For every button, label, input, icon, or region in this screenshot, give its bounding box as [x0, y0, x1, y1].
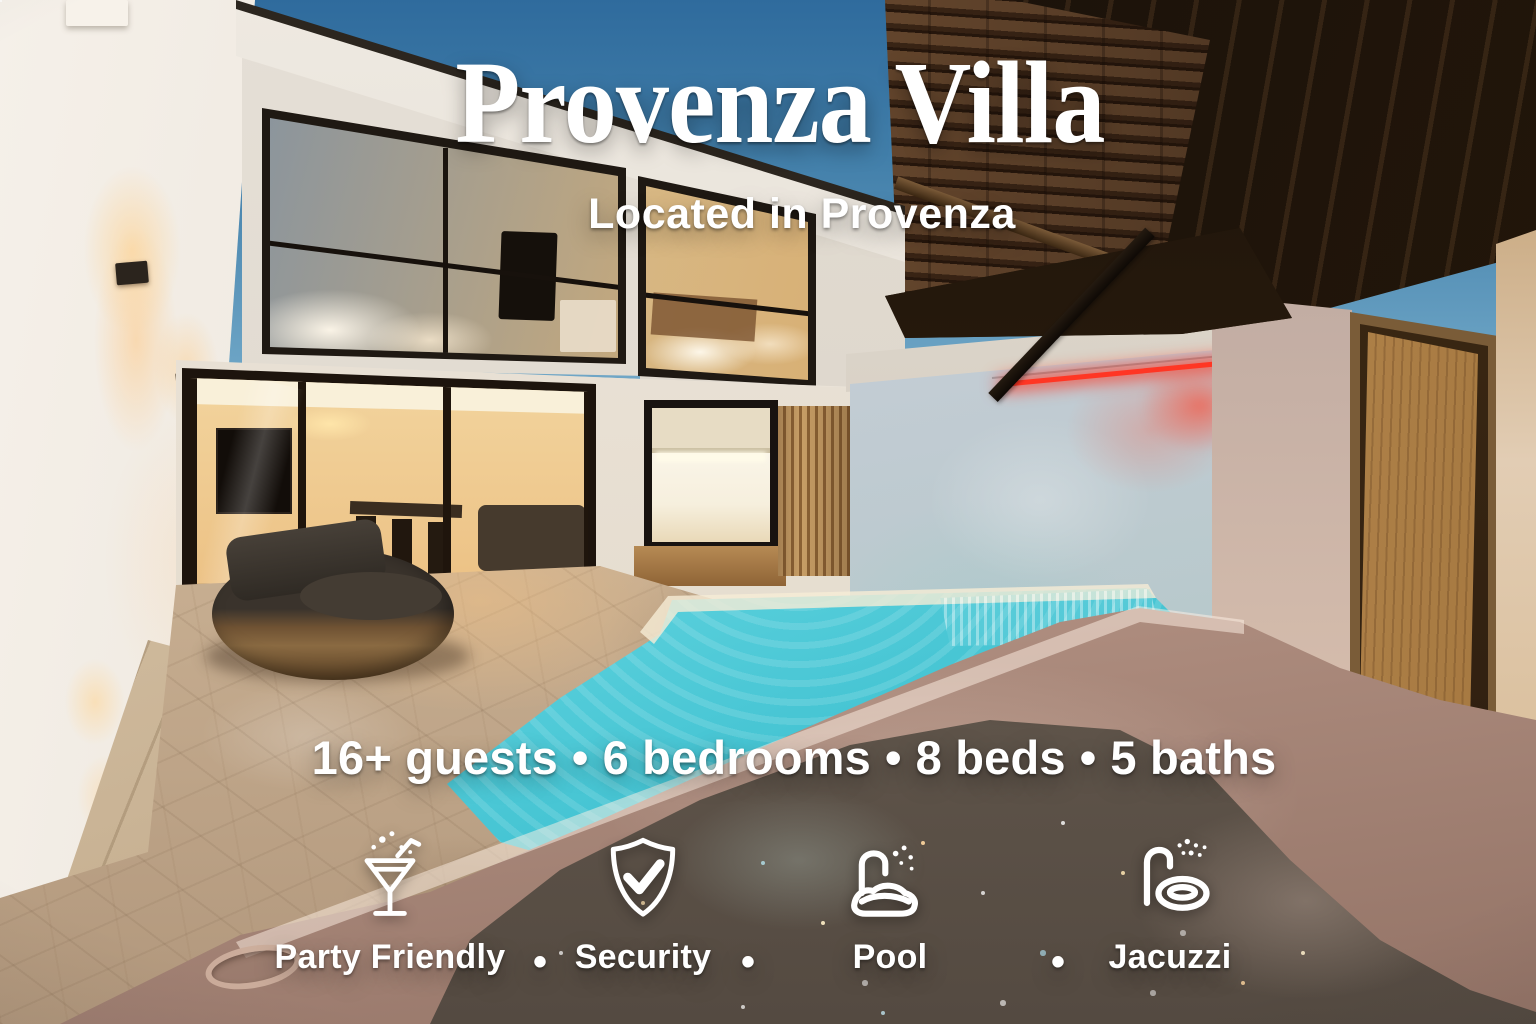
amenity-label: Jacuzzi: [1108, 938, 1231, 977]
stat-separator: •: [1080, 731, 1097, 784]
stat-separator: •: [572, 731, 589, 784]
pool-shower-icon: [843, 818, 937, 926]
capacity-stats: 16+ guests•6 bedrooms•8 beds•5 baths: [26, 730, 1536, 785]
amenity-separator: •: [1051, 940, 1065, 985]
shield-check-icon: [598, 818, 688, 926]
amenity-separator: •: [741, 940, 755, 985]
stat-guests: 16+ guests: [312, 731, 558, 784]
stat-bedrooms: 6 bedrooms: [603, 731, 871, 784]
amenity-label: Party Friendly: [275, 938, 506, 977]
jacuzzi-tub-icon: [1120, 818, 1220, 926]
location-subtitle: Located in Provenza: [34, 190, 1536, 239]
stat-baths: 5 baths: [1110, 731, 1276, 784]
page-title: Provenza Villa: [78, 44, 1482, 162]
stat-beds: 8 beds: [916, 731, 1066, 784]
amenity-separator: •: [533, 940, 547, 985]
amenity-party-friendly: Party Friendly: [260, 818, 520, 977]
amenity-label: Security: [575, 938, 712, 977]
amenity-pool: Pool: [760, 818, 1020, 977]
amenity-security: Security: [513, 818, 773, 977]
martini-icon: [342, 818, 438, 926]
amenity-jacuzzi: Jacuzzi: [1040, 818, 1300, 977]
stat-separator: •: [885, 731, 902, 784]
amenity-label: Pool: [853, 938, 928, 977]
villa-listing-cover: Provenza Villa Located in Provenza 16+ g…: [0, 0, 1536, 1024]
